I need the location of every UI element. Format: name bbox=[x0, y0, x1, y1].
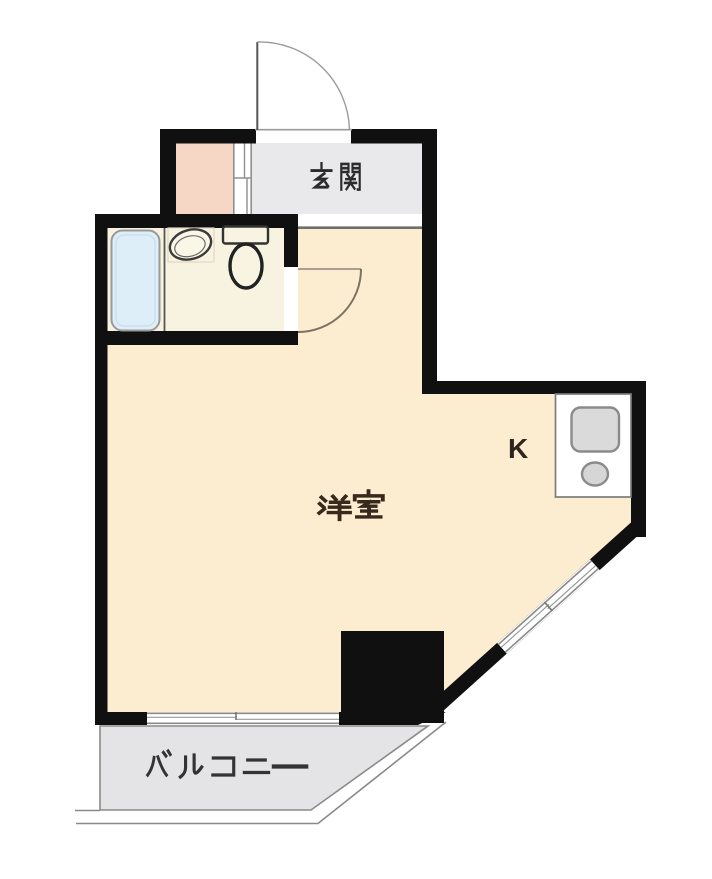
svg-text:K: K bbox=[508, 433, 528, 464]
